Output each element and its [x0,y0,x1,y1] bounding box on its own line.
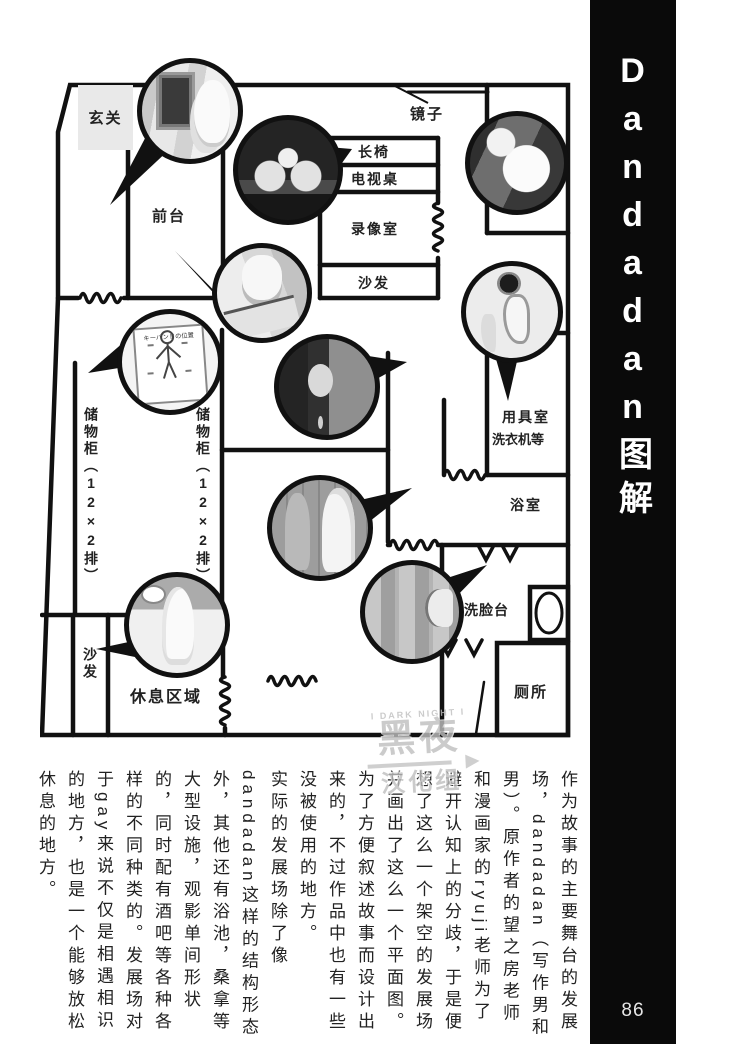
mirror-pointer-line [393,85,428,103]
scanlation-watermark: I DARK NIGHT I 黑夜 汉化组 [353,707,487,799]
panel-entrance-corridor [137,58,243,164]
room-label-bathroom: 浴室 [510,495,542,515]
panel-mirror-room [465,111,569,215]
washbasin-oval [536,593,562,633]
panel-rest-area-man [124,572,230,678]
manga-page: I DARK NIGHT I 黑夜 汉化组 キーバンドの位置 [0,0,736,1044]
panel-peeking-face [274,334,380,440]
keyband-poster: キーバンドの位置 [133,323,209,405]
room-genkan: 玄关 [78,85,133,150]
room-label-locker-right: 储物柜（12×2排） [193,407,213,585]
room-label-locker-left: 储物柜（12×2排） [81,407,101,585]
panel-keyband-poster: キーバンドの位置 [117,309,223,415]
room-label-utility-room: 用具室 [502,407,550,427]
room-label-tv-table: 电视桌 [351,169,399,189]
panel-washing-machine [461,261,563,363]
panel-locker-men [267,475,373,581]
stick-figure-icon [135,325,203,385]
article-paragraph-2: 实际的发展场除了像dandadan这样的结构形态外，其他还有浴池，桑拿等大型设施… [31,770,292,1040]
sidebar-bar: Dandadan图解 86 [590,0,676,1044]
floor-plan: I DARK NIGHT I 黑夜 汉化组 キーバンドの位置 [40,55,585,760]
article-text: 作为故事的主要舞台的发展场，dandadan（写作男和男）。原作者的望之房老师和… [26,770,582,1040]
article-paragraph-1: 作为故事的主要舞台的发展场，dandadan（写作男和男）。原作者的望之房老师和… [292,770,582,1040]
room-label-sofa-top: 沙发 [358,273,390,293]
room-label-washbasin: 洗脸台 [464,600,509,620]
panel-door-peek [360,560,464,664]
panel-bench-sitting [233,115,343,225]
room-label-utility-note: 洗衣机等 [492,429,544,448]
room-label-sofa-bottom: 沙发 [80,647,100,681]
chapter-title: Dandadan图解 [609,52,658,524]
room-label-video-room: 录像室 [351,219,399,239]
panel-front-desk [212,243,312,343]
room-label-bench: 长椅 [358,142,390,162]
room-label-genkan: 玄关 [88,107,122,128]
room-label-mirror: 镜子 [410,103,444,124]
room-label-toilet: 厕所 [514,681,548,702]
room-label-front-desk: 前台 [152,205,186,226]
page-number: 86 [621,1000,644,1022]
room-label-rest-area: 休息区域 [130,683,202,707]
